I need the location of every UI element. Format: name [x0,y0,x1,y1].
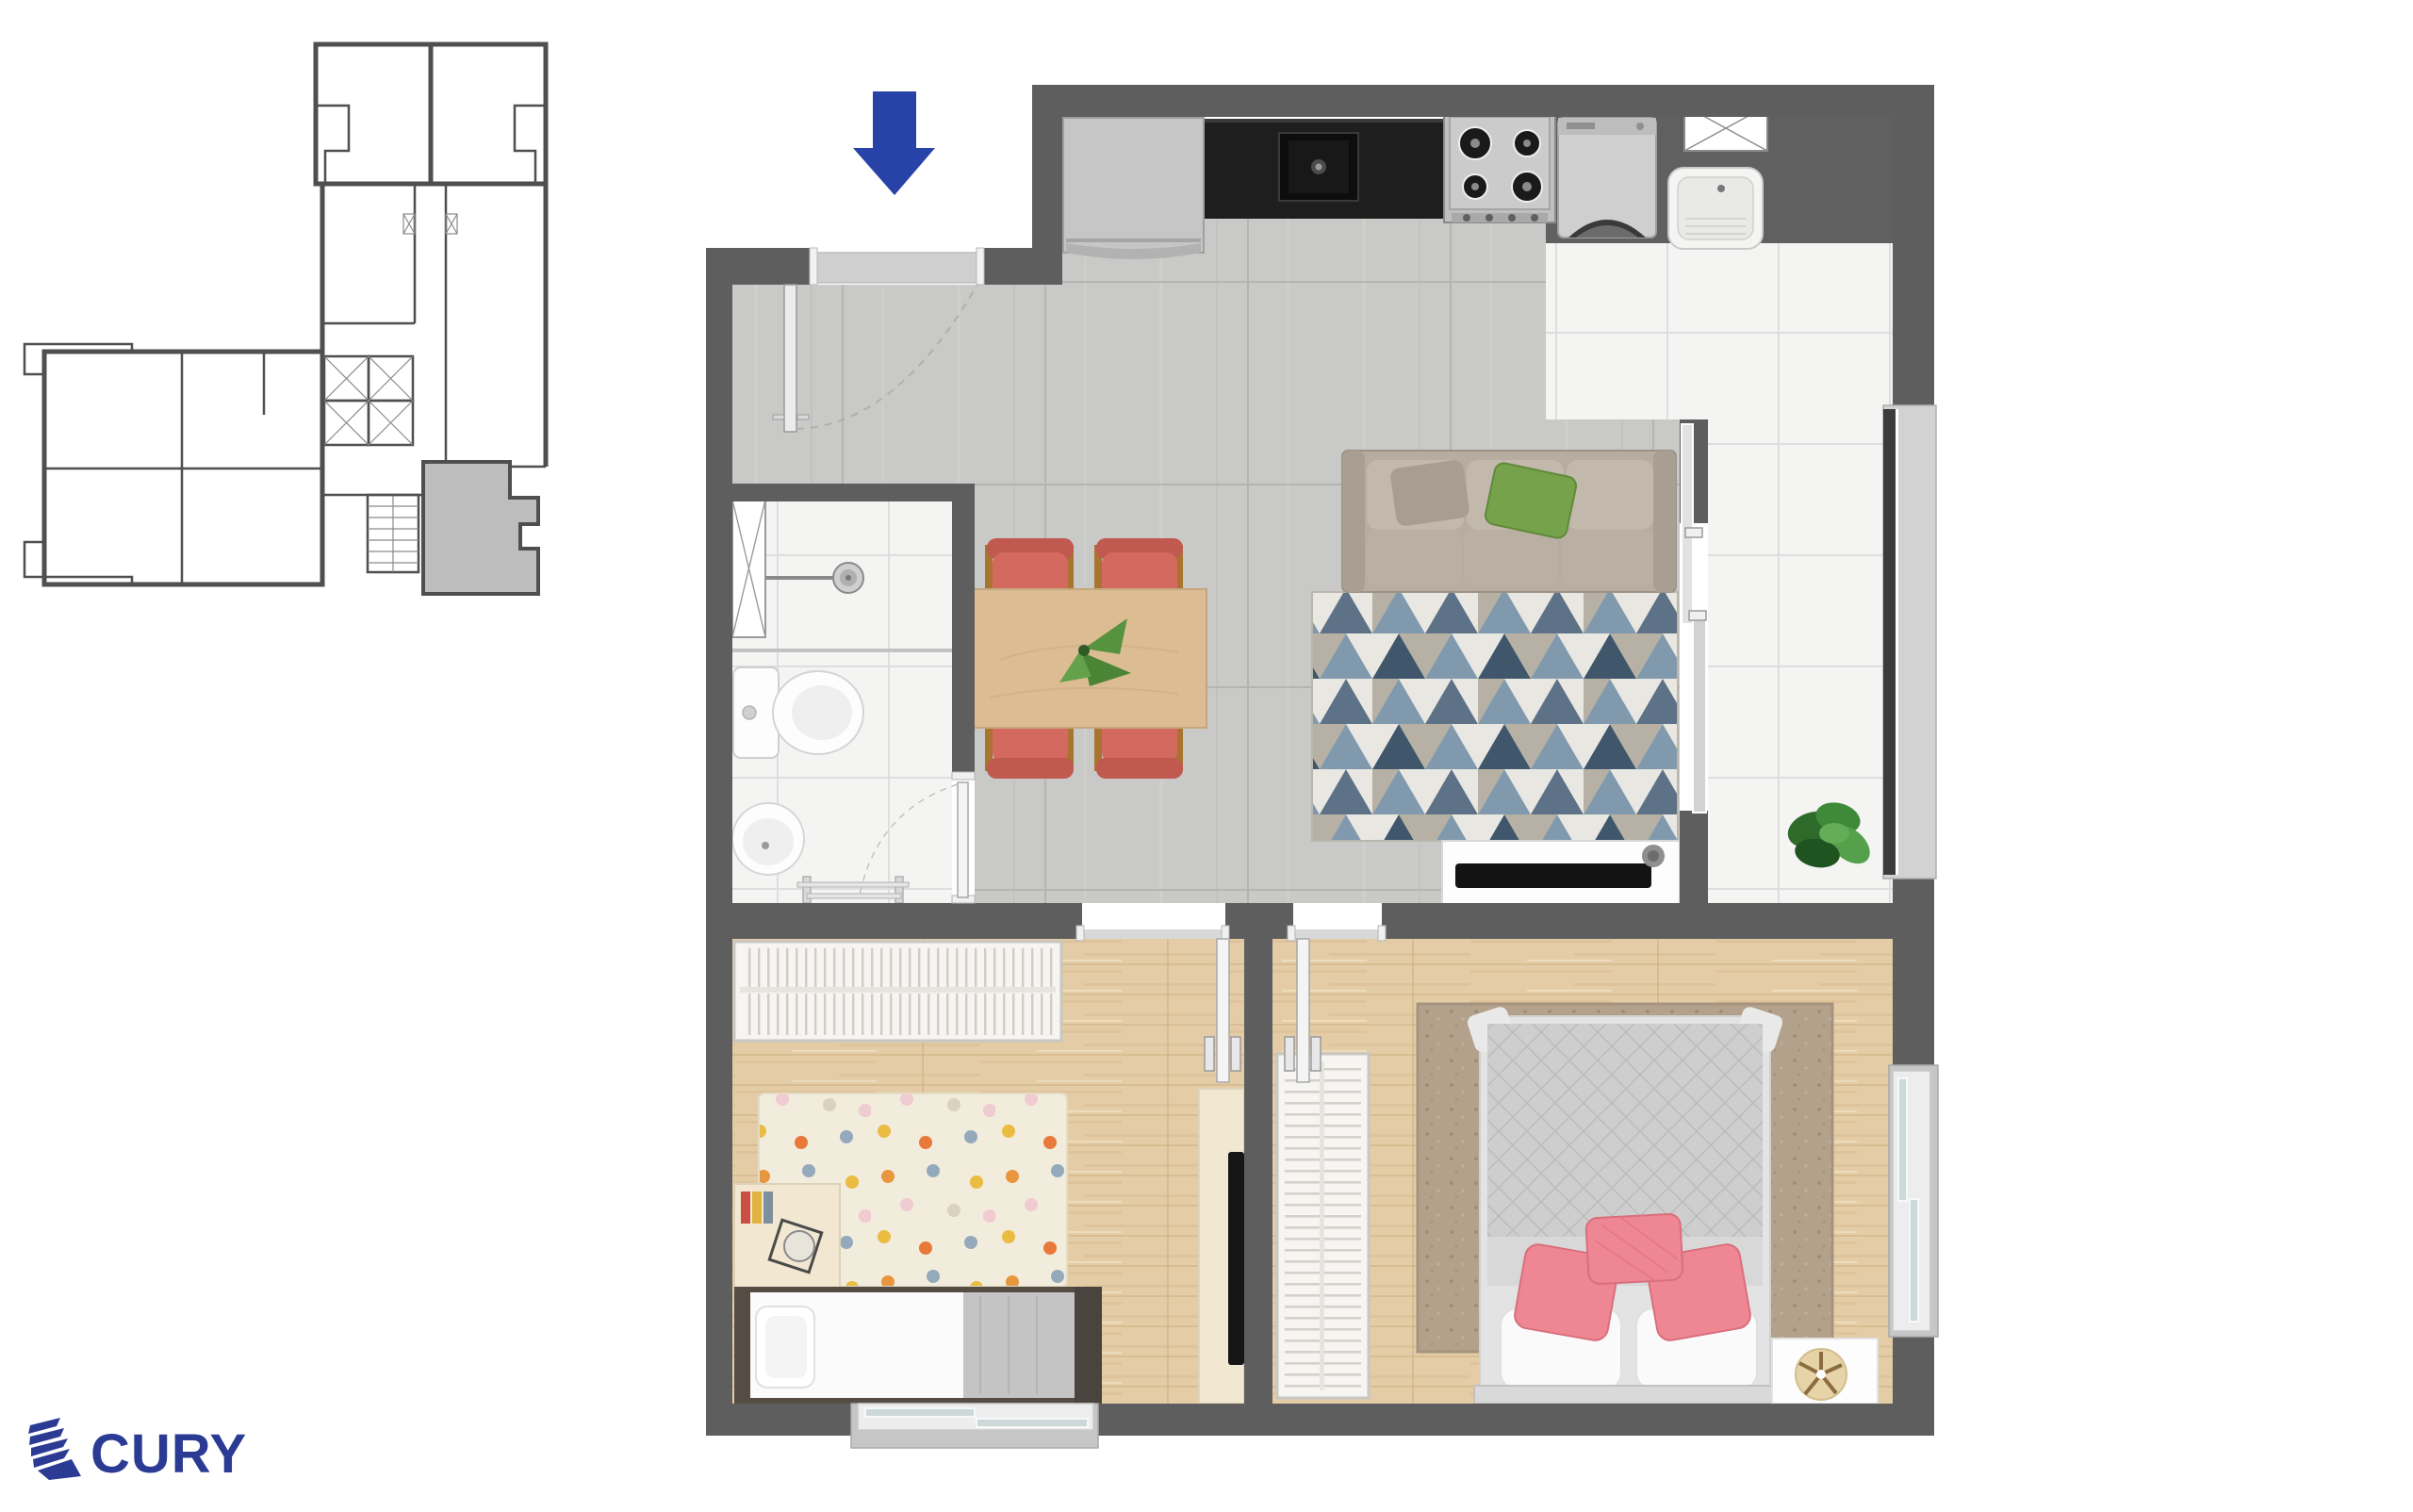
headboard [1474,1386,1776,1404]
door-leaf [1217,939,1229,1082]
cury-chevron-icon [28,1418,81,1480]
floor-plan-page: CURY [0,0,2413,1512]
gas-cooktop [1444,111,1555,222]
entry-door-leaf [784,285,796,432]
key-plan-highlighted-unit [423,462,538,594]
wall-bathroom-right [952,484,975,780]
single-bed [734,1287,1102,1404]
wall-bottom [706,1404,860,1436]
brand-name: CURY [90,1423,247,1485]
door-leaf [1297,939,1309,1082]
wall-top [1032,85,1934,117]
wardrobe [734,942,1061,1041]
round-washbasin [732,803,804,875]
wall-left [706,248,732,1436]
wall-bathroom-top [731,484,975,501]
bedroom-1 [734,942,1102,1404]
brand-logo: CURY [28,1418,247,1485]
service-floor-upper [1546,243,1893,419]
round-stool [1796,1349,1847,1400]
toilet [733,667,863,758]
study-desk [734,1184,840,1288]
bedroom1-window [851,1404,1098,1448]
wall-entry [706,248,815,285]
key-plan-elevator-core [324,356,413,445]
service-window [1883,405,1936,879]
throw-pillow [1389,459,1470,527]
bedroom2-window [1889,1065,1938,1337]
washing-machine [1558,118,1656,238]
quilt [1487,1024,1763,1242]
key-plan-stairs [368,495,419,572]
floor-plan-rendering: CURY [0,0,2413,1512]
refrigerator [1063,118,1204,259]
laundry-tank [1668,168,1763,249]
sofa [1342,451,1676,592]
key-plan [25,44,546,594]
entrance-arrow-icon [853,91,935,195]
tv [1455,863,1651,888]
wall-bedrooms-top [706,903,1082,939]
door-handle [1205,1037,1214,1071]
bathroom-door-leaf [958,782,968,897]
shower-divider [731,649,952,652]
door-handle [1285,1037,1294,1071]
key-plan-balcony [25,344,132,374]
triangle-rug [1312,592,1678,841]
wall-right [1893,85,1934,405]
dining-table [973,589,1206,728]
wall-between-bedrooms [1244,939,1272,1404]
key-plan-balcony [25,542,132,584]
double-bed [1466,1005,1784,1404]
wardrobe [1277,1054,1369,1398]
tv-panel [1228,1152,1244,1365]
